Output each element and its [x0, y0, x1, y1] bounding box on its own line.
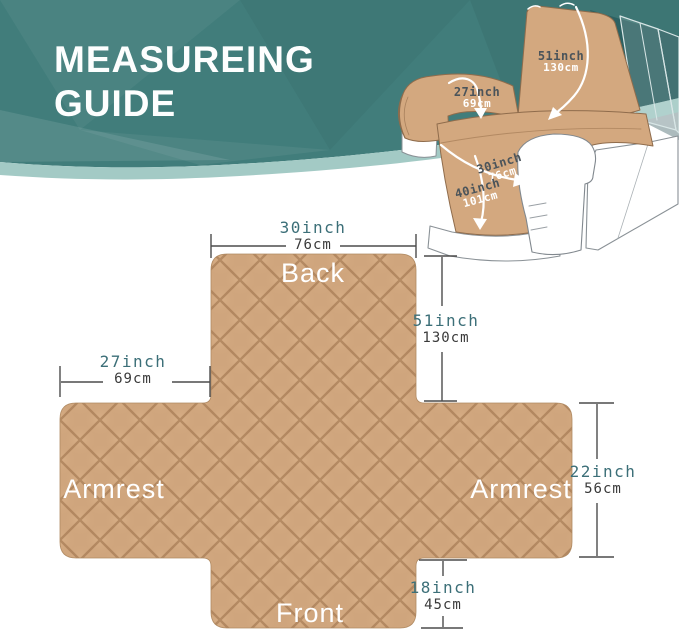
page-title-line2: GUIDE	[54, 82, 315, 126]
chair-back-height-cm: 130cm	[538, 62, 584, 74]
dimension-top-cm: 76cm	[280, 238, 347, 253]
dimension-back-side-cm: 130cm	[413, 331, 480, 346]
dimension-top: 30inch 76cm	[280, 219, 347, 253]
area-label-armrest-left: Armrest	[63, 474, 165, 505]
dimension-back-side-inch: 51inch	[413, 312, 480, 329]
dimension-bottom: 18inch 45cm	[410, 579, 477, 613]
chair-right-armrest	[518, 134, 596, 255]
measuring-guide-infographic: MEASUREING GUIDE 51inch 130cm 27inch 69c…	[0, 0, 679, 631]
dimension-right-arm: 22inch 56cm	[570, 463, 637, 497]
cover-cross-shape	[60, 254, 572, 628]
area-label-armrest-right: Armrest	[470, 474, 572, 505]
chair-label-armrest: 27inch 69cm	[454, 86, 500, 110]
dimension-bottom-inch: 18inch	[410, 579, 477, 596]
dimension-right-arm-inch: 22inch	[570, 463, 637, 480]
dimension-back-side: 51inch 130cm	[413, 312, 480, 346]
dimension-left-arm-inch: 27inch	[100, 353, 167, 370]
chair-armrest-cm: 69cm	[454, 98, 500, 110]
area-label-back: Back	[281, 258, 345, 289]
page-title: MEASUREING GUIDE	[54, 38, 315, 126]
dimension-left-arm-cm: 69cm	[100, 372, 167, 387]
dimension-left-arm: 27inch 69cm	[100, 353, 167, 387]
area-label-front: Front	[276, 598, 344, 629]
dimension-bottom-cm: 45cm	[410, 598, 477, 613]
chair-label-back-height: 51inch 130cm	[538, 50, 584, 74]
dimension-top-inch: 30inch	[280, 219, 347, 236]
page-title-line1: MEASUREING	[54, 38, 315, 82]
dimension-right-arm-cm: 56cm	[570, 482, 637, 497]
